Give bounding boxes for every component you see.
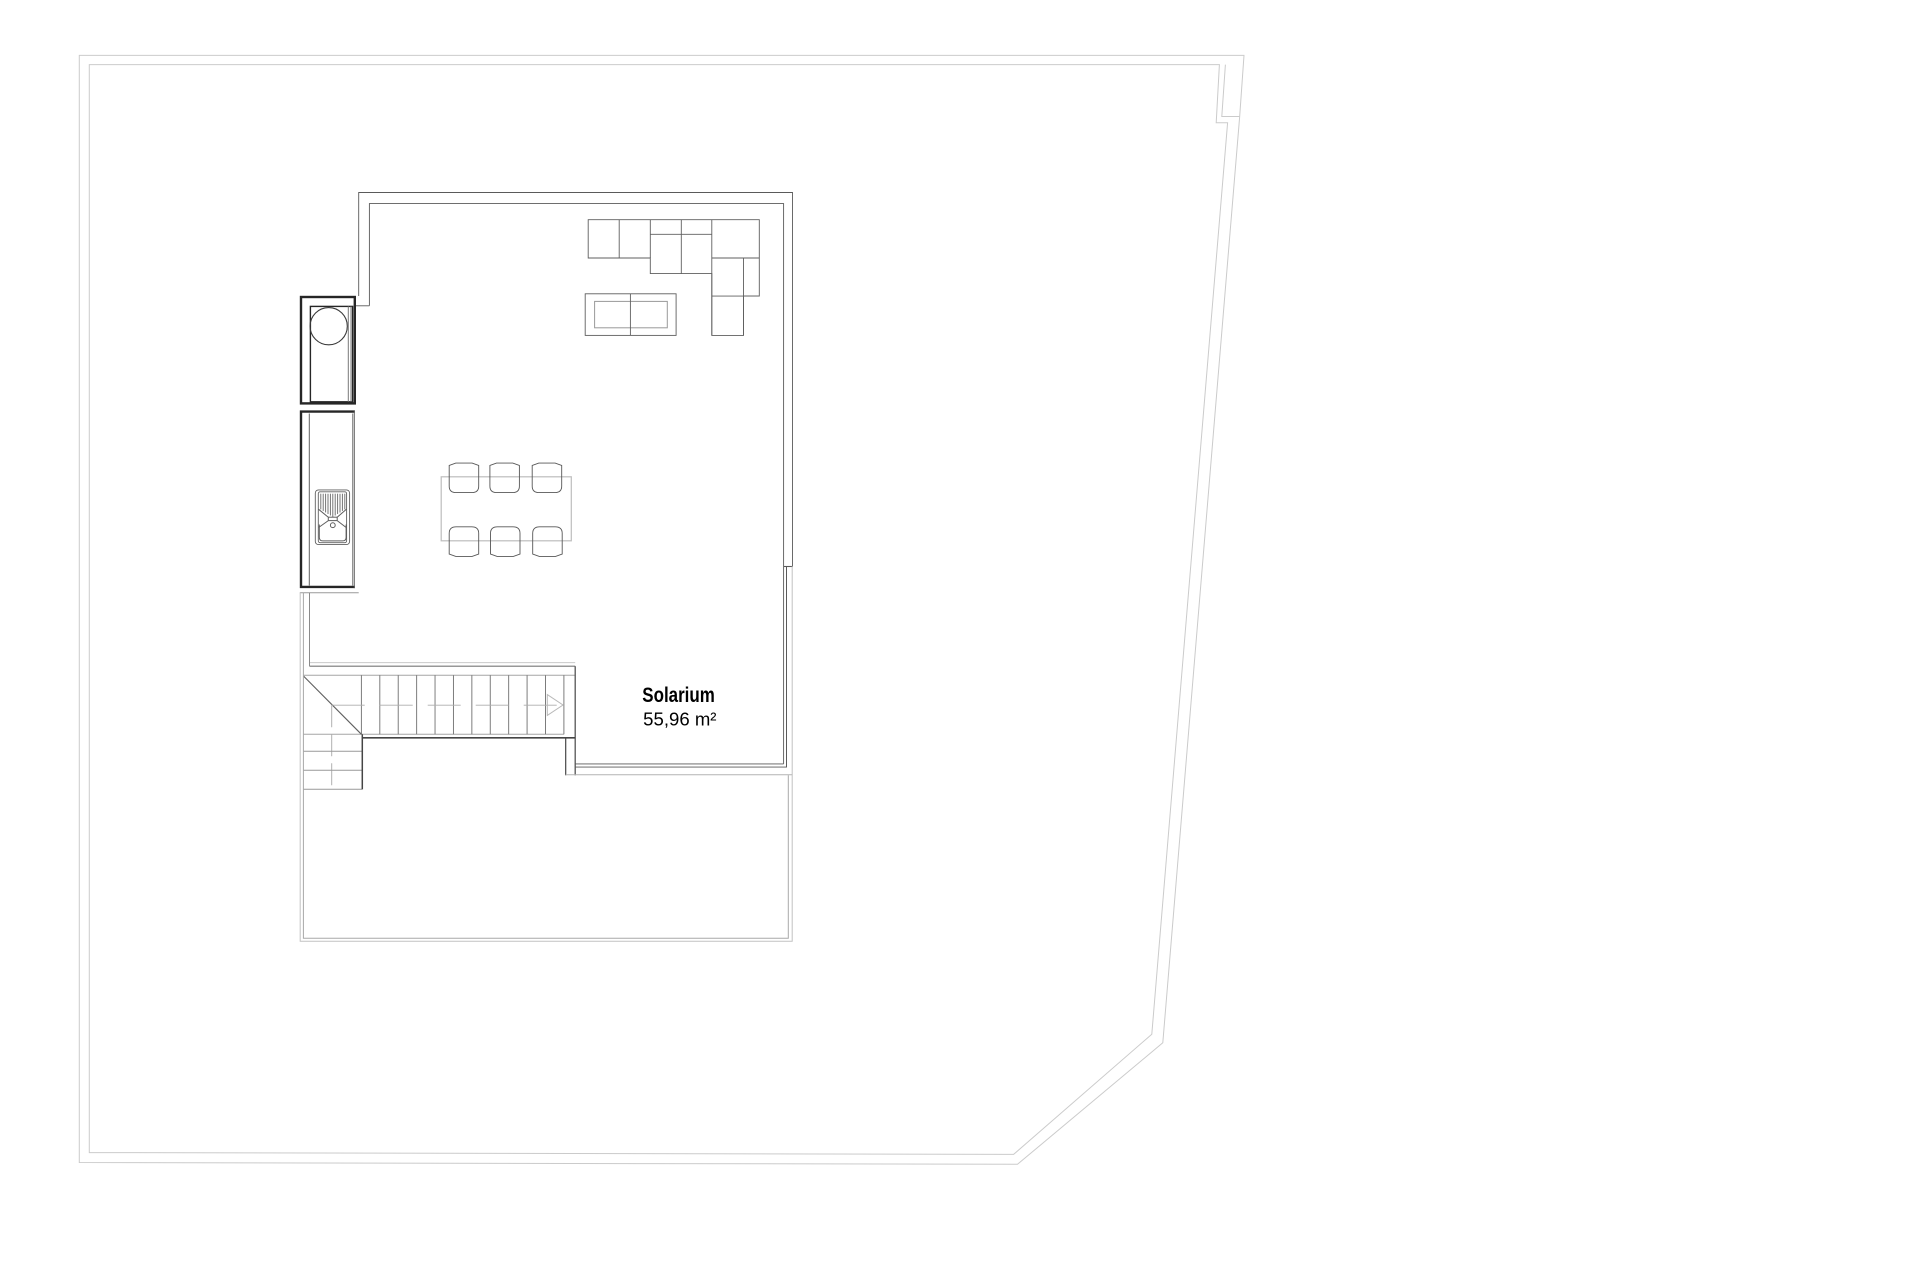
svg-text:Solarium: Solarium (642, 684, 715, 707)
svg-text:55,96 m²: 55,96 m² (643, 708, 716, 729)
